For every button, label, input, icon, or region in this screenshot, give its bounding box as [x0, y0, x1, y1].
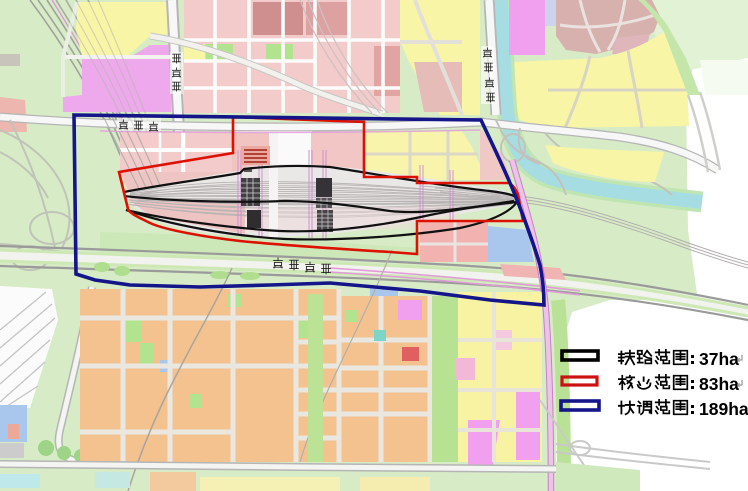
svg-text:37ha: 37ha: [699, 349, 739, 369]
svg-text:189ha: 189ha: [699, 399, 748, 419]
svg-text:83ha: 83ha: [699, 374, 739, 394]
